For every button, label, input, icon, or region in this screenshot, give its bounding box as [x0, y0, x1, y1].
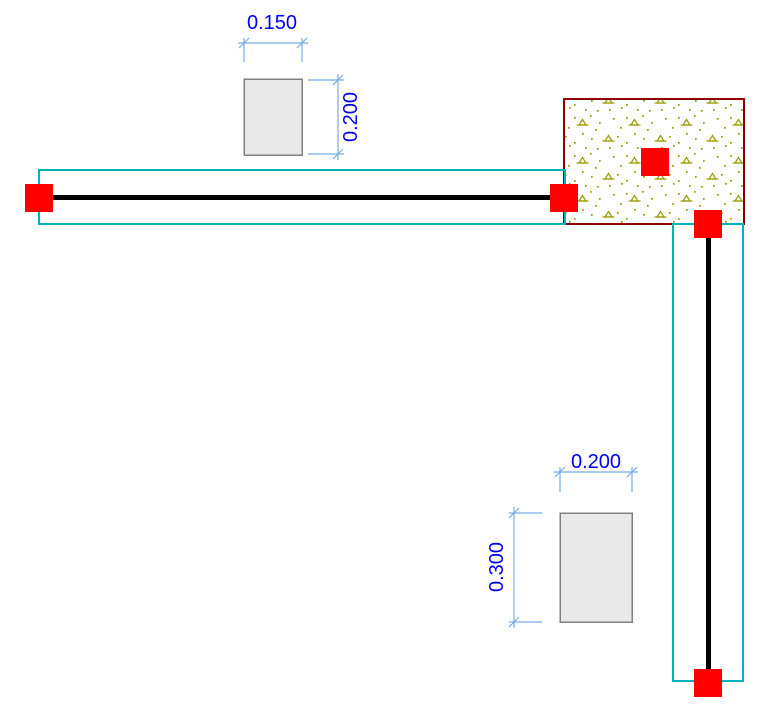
- section-bottom[interactable]: 0.200 0.300: [486, 451, 638, 628]
- joint-node-wall-center[interactable]: [641, 148, 669, 176]
- section-bottom-height-dim: [509, 507, 542, 628]
- joint-node-column-bottom[interactable]: [694, 669, 722, 697]
- section-top-rect[interactable]: [244, 79, 302, 155]
- section-top-width-label: 0.150: [247, 12, 297, 34]
- section-top-height-dim: [308, 74, 344, 160]
- drawing-canvas[interactable]: 0.150 0.200 0.200: [0, 0, 784, 716]
- section-top-width-dim: [238, 38, 308, 62]
- section-top-height-label: 0.200: [340, 92, 362, 142]
- section-bottom-width-label: 0.200: [571, 451, 621, 473]
- model-svg: 0.150 0.200 0.200: [0, 0, 784, 716]
- joint-node-left[interactable]: [25, 184, 53, 212]
- section-top[interactable]: 0.150 0.200: [238, 12, 362, 160]
- section-bottom-height-label: 0.300: [486, 542, 508, 592]
- joint-node-column-top[interactable]: [694, 210, 722, 238]
- section-bottom-rect[interactable]: [560, 513, 632, 622]
- joint-node-beam-right[interactable]: [550, 184, 578, 212]
